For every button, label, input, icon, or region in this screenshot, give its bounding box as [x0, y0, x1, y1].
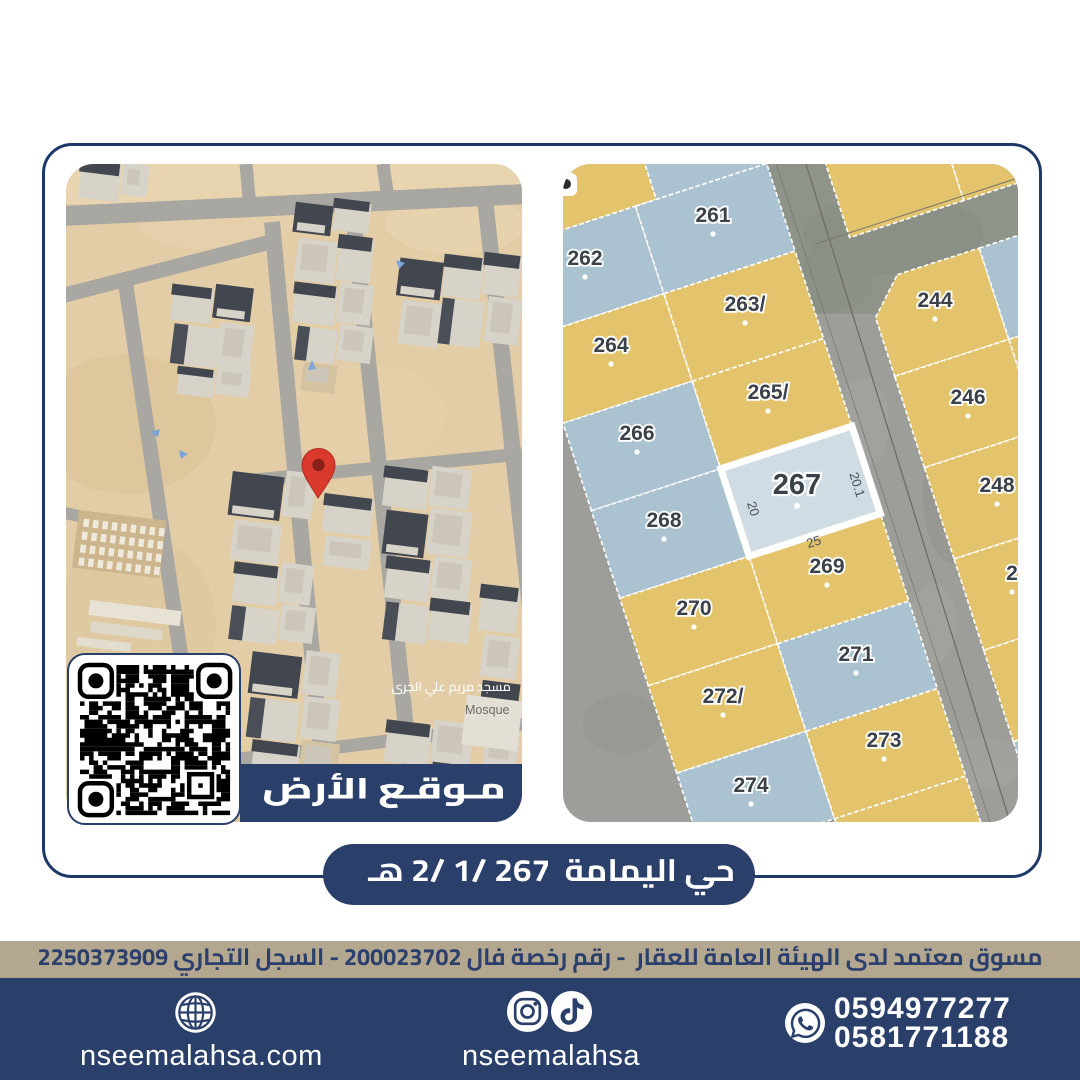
- svg-text:270: 270: [676, 597, 711, 620]
- svg-text:262: 262: [567, 247, 602, 270]
- svg-text:266: 266: [619, 422, 654, 445]
- svg-text:2: 2: [1006, 562, 1018, 585]
- svg-text:269: 269: [809, 555, 844, 578]
- svg-text:264: 264: [593, 334, 628, 357]
- svg-text:274: 274: [733, 774, 768, 797]
- svg-text:261: 261: [695, 204, 730, 227]
- svg-text:268: 268: [646, 509, 681, 532]
- svg-text:267: 267: [773, 469, 821, 501]
- svg-text:273: 273: [866, 729, 901, 752]
- svg-text:272/: 272/: [703, 685, 744, 708]
- svg-text:271: 271: [838, 643, 873, 666]
- svg-text:Mosque: Mosque: [465, 703, 510, 717]
- svg-text:246: 246: [950, 386, 985, 409]
- svg-text:244: 244: [917, 289, 952, 312]
- svg-text:248: 248: [979, 474, 1014, 497]
- svg-text:265/: 265/: [748, 381, 789, 404]
- svg-text:263/: 263/: [725, 293, 766, 316]
